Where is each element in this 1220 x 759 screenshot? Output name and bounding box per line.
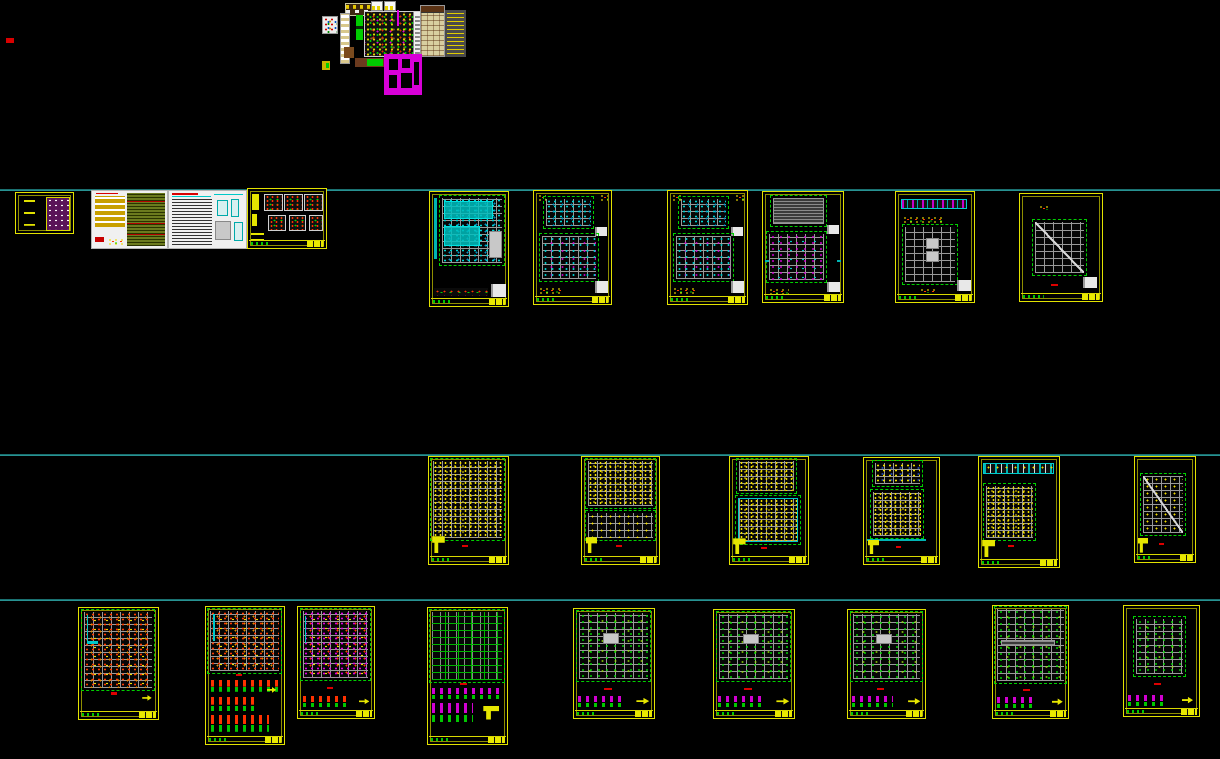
dash-red [462,545,468,547]
titleblock-w [731,281,744,292]
mini-cyan [234,222,243,241]
cyanbar [434,198,437,260]
speck-y [986,486,1032,539]
tiles-mg [1128,695,1166,706]
arrow-y [359,698,370,705]
sheet-wall-plan-5[interactable] [992,605,1069,719]
grid [433,461,503,538]
titleblock-w [1083,277,1097,288]
speck-ro [84,612,153,687]
sheet-wall-plan-6[interactable] [1123,605,1200,717]
dash-red [1008,545,1014,547]
grid [739,461,794,491]
mini-gray [926,238,939,249]
tiles-rg [211,697,258,711]
sheet-rebar-plan-6[interactable] [1134,456,1196,563]
sheet-wall-plan-2[interactable] [573,608,655,719]
yellow-solid [252,194,259,211]
sheet-titlebar [897,294,973,301]
speck-multi [538,287,561,294]
arrow-y [1182,696,1193,704]
titleblock-w [595,281,608,292]
layout-guide-line-3 [0,599,1220,601]
tiles-mg [997,697,1036,708]
sheet-rebar-plan-1[interactable] [428,456,509,565]
sheet-titlebar [575,710,653,717]
magenta-tick[interactable] [397,10,399,26]
sheet-titlebar [430,556,507,563]
sheet-titlebar [1021,293,1101,300]
sheet-rebar-plan-4[interactable] [863,457,940,565]
flag-y [432,536,445,553]
rule-cyan [87,615,89,644]
speck-yb [875,463,920,484]
flag-y [586,537,598,553]
grid [542,236,596,279]
grid [676,236,731,279]
speck-cm [676,236,731,279]
sheet-framing-plan-2[interactable] [667,190,748,305]
speck-multi [902,216,945,223]
rule-red [172,193,198,194]
mini-cyan [231,199,239,217]
tile-color [289,215,307,231]
green-bar[interactable] [356,15,363,40]
sheet-wall-plan-1[interactable] [427,607,508,745]
speck-g2 [853,614,920,679]
speck-g2 [1136,619,1183,674]
titleblock-w [827,282,840,292]
speck-y [739,461,794,491]
bar-cyan [765,260,770,262]
rule-cyan [213,614,215,641]
sheet-titlebar [80,711,157,718]
flag-y [982,540,995,558]
grid [873,492,921,537]
flag-y [733,538,745,554]
sheet-titlebar [980,559,1058,566]
speck-multi [599,194,608,201]
grid [738,498,798,543]
tiles-rg [303,696,350,707]
sheet-framing-plan-1[interactable] [533,190,612,305]
arrow-y [908,698,920,706]
arrow-y [636,697,649,705]
grid [1136,619,1183,674]
flag-y [483,706,499,720]
speck-y2 [984,464,1053,474]
arrow-y [1052,698,1063,706]
room [414,62,419,85]
strip-rg [434,288,489,296]
dash-red [111,692,117,694]
grid [769,234,823,280]
sheet-framing-plan-3[interactable] [762,191,844,303]
sheet-beam-elevation[interactable] [895,191,975,303]
titleblock-w [491,284,506,297]
tiles-mg [718,696,761,707]
flag-y [1138,538,1148,553]
tiles-rg [211,715,270,731]
olive-blocks [95,196,125,228]
grid [303,611,368,678]
speck-ro [210,611,279,671]
hatch [1001,640,1056,646]
speck-multi [537,194,546,201]
mini-gray [926,251,939,262]
diag [1035,222,1084,273]
dash-red [761,547,767,549]
sheet-titlebar [583,556,658,563]
sheet-roof-plan[interactable] [1019,193,1103,302]
dash-red [877,688,884,690]
arrow-y [142,695,151,702]
titleblock-w [731,227,743,236]
speck-g2 [719,614,789,679]
sheet-titlebar [764,294,842,301]
speck-y [588,461,653,506]
sheet-wall-plan-3[interactable] [713,609,795,719]
grid [588,461,653,506]
green-inner [326,63,329,68]
dashes-y [22,200,38,226]
speck-multi [1038,205,1049,210]
sheet-general-notes-1[interactable] [91,190,168,249]
mini-gray [876,634,892,645]
speck-g2 [579,613,649,678]
speck-multi [672,287,696,294]
speck-c [681,199,727,226]
titleblock-w [595,227,607,236]
dash-red [744,688,751,690]
sheet-rebar-plan-5[interactable] [978,456,1060,568]
sheet-cover[interactable] [15,192,74,234]
speck-m [769,234,823,280]
tile-color [309,215,323,231]
bar-cyan [837,260,842,262]
speck-y [873,492,921,537]
mini-gray [743,634,759,645]
tile-color [264,194,283,211]
speck-mr [303,611,368,678]
grid [210,611,279,671]
rule-red [96,193,119,195]
speck-y2 [588,513,653,539]
sheet-column-plan-2[interactable] [205,606,285,745]
grid [719,614,789,679]
titleblock-w [957,280,971,291]
yellow-solid [252,214,257,226]
sheet-general-notes-2[interactable] [168,190,247,249]
speck-multi [919,288,935,294]
room [402,59,410,68]
tiles-mg [578,696,621,707]
grid [546,199,591,226]
sheet-titlebar [431,298,507,305]
sheet-titlebar [669,296,746,303]
green-inner [367,59,383,65]
tiles-mg [432,703,473,722]
speck-multi [734,194,743,201]
text-olive [127,193,165,247]
sheet-titlebar [731,556,807,563]
rule-cyan [87,641,98,643]
mini-cyan [217,200,228,216]
tiles-mg [432,688,502,699]
dash-red [1051,284,1058,286]
sheet-wall-plan-4[interactable] [847,609,926,719]
mini-gray [215,221,231,240]
sheet-titlebar [865,556,938,563]
mini-table-b[interactable] [384,1,396,11]
speck-y [739,499,797,542]
dash-red [1154,683,1161,685]
grid-g [432,612,502,680]
dash-red [1159,543,1164,545]
room [389,75,397,87]
sheet-titlebar [535,296,610,303]
grid [588,513,653,539]
grid [84,612,153,687]
beamstrip-c [983,463,1054,475]
floor-plan-magenta[interactable] [384,54,422,95]
sheet-titlebar [994,710,1067,717]
speck-c [546,199,591,226]
text-dark [172,199,212,245]
tile-color [304,194,323,211]
sheet-titlebar [1125,708,1198,715]
tile-color [268,215,286,231]
panel-purple [46,197,71,231]
grid [875,463,920,484]
sheet-titlebar [849,710,924,717]
red-blob [95,237,104,243]
hatch [773,198,825,224]
grid [853,614,920,679]
block-cyan [444,226,480,246]
rule-cyan [214,194,243,195]
arrow-y [776,698,789,706]
sheet-titlebar [429,736,506,743]
dash-red [604,688,611,690]
block-cyan [444,201,493,219]
color-swatch-table[interactable] [322,16,338,34]
site-plan-block[interactable] [364,11,422,57]
flag-y [868,540,879,555]
sheet-column-plan-3[interactable] [297,606,375,719]
dash-red [896,546,901,548]
dash-red [1023,689,1030,691]
speck-multi [671,194,680,201]
tan-header [421,6,444,13]
grid [579,613,649,678]
notes-panel-gray[interactable] [445,10,466,57]
sheet-rebar-plan-3[interactable] [729,456,809,565]
room [401,73,412,88]
dash-red [236,674,242,676]
tiles-mg [852,696,894,707]
sheet-foundation-plan[interactable] [429,191,509,307]
mini-table-a[interactable] [371,1,383,11]
material-table[interactable] [420,5,445,57]
sheet-titlebar [715,710,793,717]
sheet-titlebar [299,710,373,717]
sheet-column-plan-1[interactable] [78,607,159,720]
dash-red [460,683,467,685]
rule-cyan [305,616,307,643]
sheet-titlebar [249,240,325,247]
grid [681,199,727,226]
sheet-rebar-plan-2[interactable] [581,456,660,565]
grid [986,486,1032,539]
mini-gray [489,231,502,258]
sheet-titlebar [207,736,283,743]
sheet-titlebar [1136,554,1194,561]
sheet-standard-details[interactable] [247,188,327,249]
speck-y [433,461,503,538]
speck-cm [542,236,596,279]
speck-multi [107,238,125,245]
small-flag-piece[interactable] [322,61,330,70]
dash-red [616,545,622,547]
bracket-piece[interactable] [344,47,354,58]
diag [1143,476,1183,533]
titleblock-w [827,225,839,234]
room [389,59,398,70]
red-marker[interactable] [6,38,14,43]
dash-red [327,687,333,689]
mini-gray [603,633,619,644]
beamstrip [901,199,967,210]
cad-model-space-canvas [0,0,1220,759]
tile-color [284,194,303,211]
rule-cyan [172,196,211,197]
